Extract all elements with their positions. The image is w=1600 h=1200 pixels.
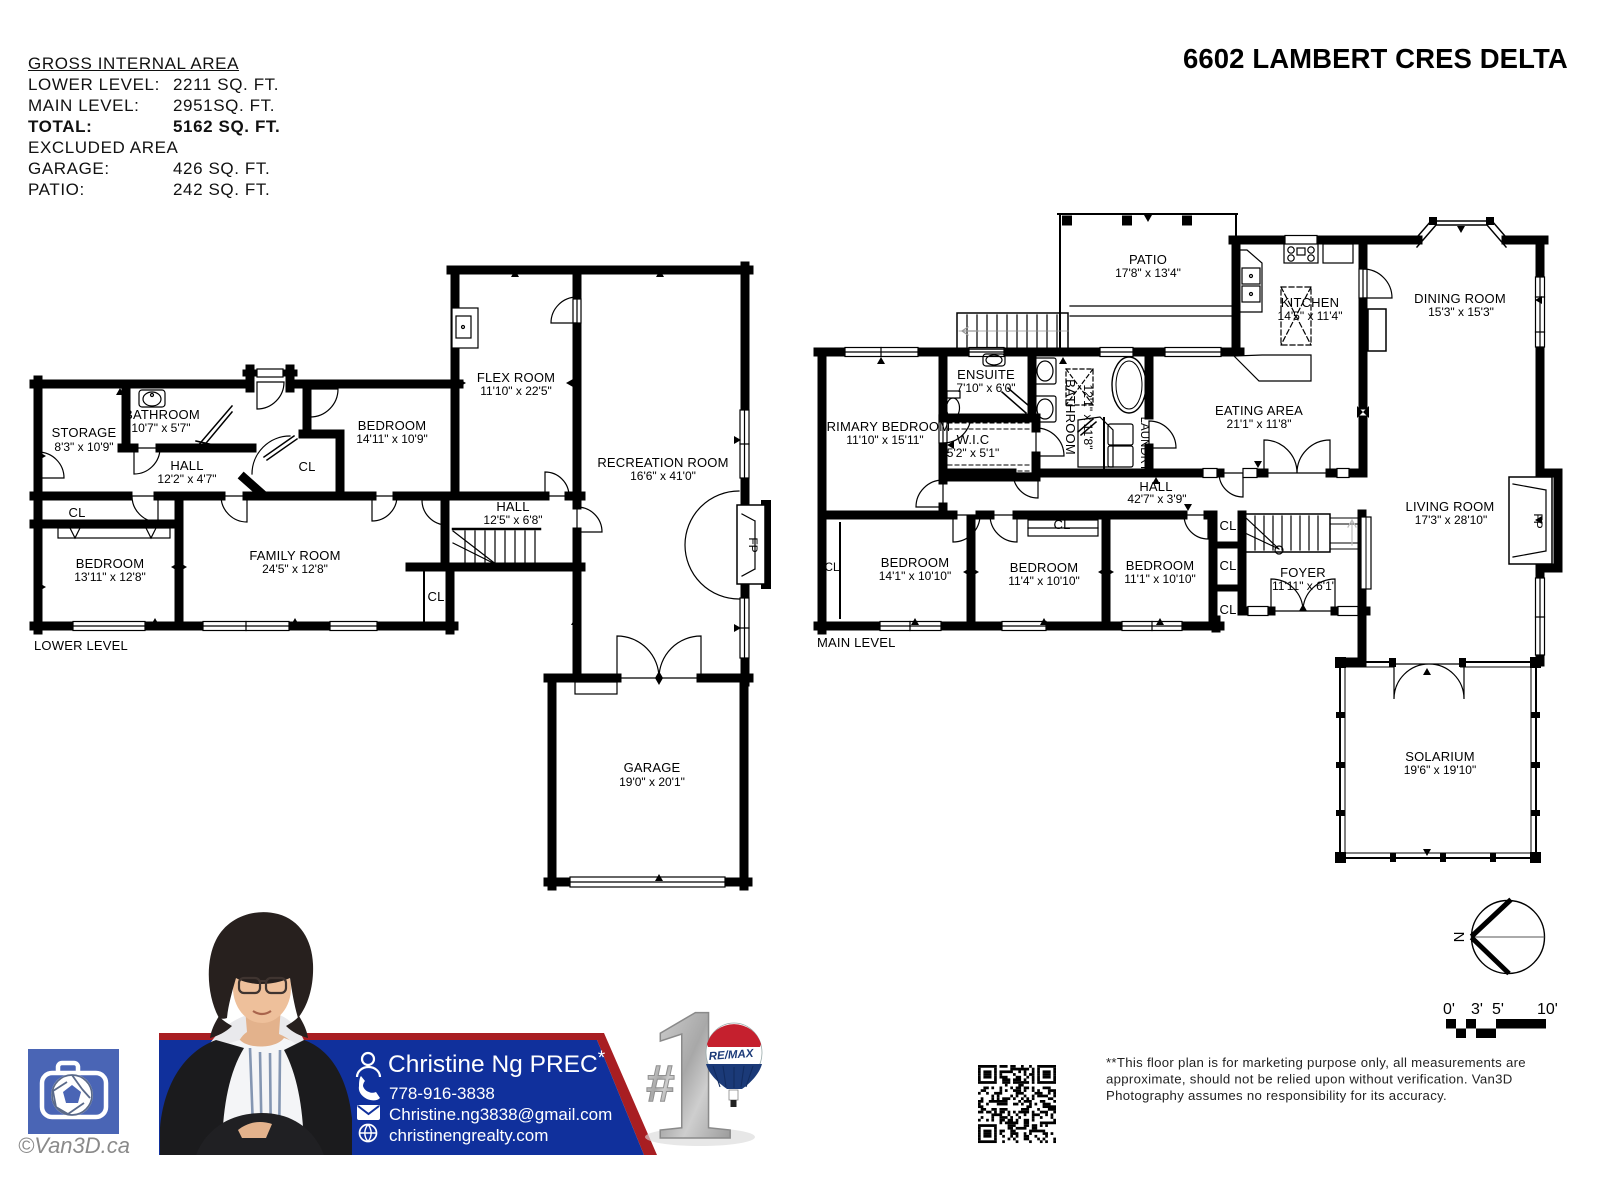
svg-text:21'1" x 11'8": 21'1" x 11'8" bbox=[1227, 417, 1292, 431]
svg-text:13'11" x 12'8": 13'11" x 12'8" bbox=[74, 570, 146, 584]
svg-text:Christine.ng3838@gmail.com: Christine.ng3838@gmail.com bbox=[389, 1105, 612, 1124]
svg-text:0': 0' bbox=[1443, 1001, 1455, 1018]
svg-text:14'5" x 11'4": 14'5" x 11'4" bbox=[1278, 309, 1343, 323]
svg-text:BEDROOM: BEDROOM bbox=[881, 555, 950, 570]
svg-text:11'10" x 15'11": 11'10" x 15'11" bbox=[846, 433, 923, 447]
svg-text:11'1" x 10'10": 11'1" x 10'10" bbox=[1124, 572, 1196, 586]
svg-text:12'5" x 6'8": 12'5" x 6'8" bbox=[483, 513, 542, 527]
svg-text:ENSUITE: ENSUITE bbox=[957, 367, 1015, 382]
svg-text:11'11" x 6'1": 11'11" x 6'1" bbox=[1272, 579, 1336, 593]
svg-text:24'5" x 12'8": 24'5" x 12'8" bbox=[262, 562, 328, 576]
svg-text:5': 5' bbox=[1492, 1001, 1504, 1018]
svg-text:3': 3' bbox=[1471, 1001, 1483, 1018]
svg-text:10': 10' bbox=[1537, 1001, 1558, 1018]
svg-text:15'3" x 15'3": 15'3" x 15'3" bbox=[1428, 305, 1494, 319]
svg-text:PRIMARY BEDROOM: PRIMARY BEDROOM bbox=[818, 419, 951, 434]
svg-text:SOLARIUM: SOLARIUM bbox=[1405, 749, 1475, 764]
svg-text:11'4" x 10'10": 11'4" x 10'10" bbox=[1008, 574, 1080, 588]
svg-text:BEDROOM: BEDROOM bbox=[1010, 560, 1079, 575]
svg-text:GARAGE: GARAGE bbox=[624, 760, 681, 775]
svg-text:Photography assumes no respons: Photography assumes no responsibility fo… bbox=[1106, 1088, 1447, 1103]
svg-text:CL: CL bbox=[825, 562, 840, 574]
svg-text:FP: FP bbox=[746, 537, 760, 552]
svg-text:19'6" x 19'10": 19'6" x 19'10" bbox=[1404, 763, 1477, 777]
svg-text:5'2" x 5'1": 5'2" x 5'1" bbox=[947, 446, 999, 460]
svg-text:CL: CL bbox=[427, 589, 444, 604]
svg-text:42'7" x 3'9": 42'7" x 3'9" bbox=[1127, 492, 1186, 506]
svg-text:KITCHEN: KITCHEN bbox=[1281, 295, 1339, 310]
svg-text:CL: CL bbox=[1219, 558, 1236, 573]
svg-text:FLEX ROOM: FLEX ROOM bbox=[477, 370, 555, 385]
svg-text:CL: CL bbox=[1053, 517, 1070, 532]
svg-text:778-916-3838: 778-916-3838 bbox=[389, 1084, 495, 1103]
svg-text:CL: CL bbox=[1219, 518, 1236, 533]
svg-text:14'11" x 10'9": 14'11" x 10'9" bbox=[356, 432, 428, 446]
svg-text:EATING AREA: EATING AREA bbox=[1215, 403, 1303, 418]
svg-text:14'1" x 10'10": 14'1" x 10'10" bbox=[879, 569, 952, 583]
svg-text:Christine Ng PREC*: Christine Ng PREC* bbox=[388, 1048, 606, 1078]
svg-text:BEDROOM: BEDROOM bbox=[1126, 558, 1195, 573]
svg-text:christinengrealty.com: christinengrealty.com bbox=[389, 1126, 548, 1145]
svg-text:LAUNDRY: LAUNDRY bbox=[1138, 417, 1150, 472]
svg-text:HALL: HALL bbox=[496, 499, 529, 514]
svg-text:19'0" x 20'1": 19'0" x 20'1" bbox=[619, 775, 685, 789]
svg-text:LOWER LEVEL: LOWER LEVEL bbox=[34, 638, 128, 653]
svg-text:BEDROOM: BEDROOM bbox=[76, 556, 145, 571]
svg-text:12'2" x 4'7": 12'2" x 4'7" bbox=[157, 472, 216, 486]
svg-text:CL: CL bbox=[68, 505, 85, 520]
svg-text:10'7" x 5'7": 10'7" x 5'7" bbox=[131, 421, 190, 435]
svg-text:approximate, should not be rel: approximate, should not be relied upon w… bbox=[1106, 1072, 1513, 1087]
svg-text:FAMILY ROOM: FAMILY ROOM bbox=[249, 548, 340, 563]
svg-text:16'6" x 41'0": 16'6" x 41'0" bbox=[630, 469, 696, 483]
svg-text:**This floor plan is for marke: **This floor plan is for marketing purpo… bbox=[1106, 1055, 1526, 1070]
svg-text:N: N bbox=[1451, 932, 1468, 943]
svg-text:7'10" x 6'0": 7'10" x 6'0" bbox=[956, 381, 1015, 395]
svg-text:CL: CL bbox=[1219, 602, 1236, 617]
svg-text:LIVING ROOM: LIVING ROOM bbox=[1406, 499, 1495, 514]
svg-text:RECREATION ROOM: RECREATION ROOM bbox=[597, 455, 728, 470]
svg-text:PATIO: PATIO bbox=[1129, 252, 1167, 267]
svg-text:MAIN LEVEL: MAIN LEVEL bbox=[817, 635, 896, 650]
svg-text:BATHROOM: BATHROOM bbox=[1063, 379, 1078, 455]
svg-text:11'10" x 22'5": 11'10" x 22'5" bbox=[480, 384, 552, 398]
svg-text:HALL: HALL bbox=[170, 458, 203, 473]
svg-text:8'3" x 10'9": 8'3" x 10'9" bbox=[54, 440, 113, 454]
svg-text:12'1" x 11'8": 12'1" x 11'8" bbox=[1081, 385, 1095, 450]
svg-text:17'3" x 28'10": 17'3" x 28'10" bbox=[1415, 513, 1488, 527]
svg-text:CL: CL bbox=[298, 459, 315, 474]
svg-text:FOYER: FOYER bbox=[1280, 565, 1326, 580]
svg-text:BATHROOM: BATHROOM bbox=[124, 407, 200, 422]
svg-text:STORAGE: STORAGE bbox=[52, 425, 117, 440]
svg-text:DINING ROOM: DINING ROOM bbox=[1414, 291, 1506, 306]
svg-text:BEDROOM: BEDROOM bbox=[358, 418, 427, 433]
svg-text:17'8" x 13'4": 17'8" x 13'4" bbox=[1115, 266, 1181, 280]
svg-text:©Van3D.ca: ©Van3D.ca bbox=[18, 1133, 130, 1158]
svg-text:W.I.C: W.I.C bbox=[957, 432, 990, 447]
